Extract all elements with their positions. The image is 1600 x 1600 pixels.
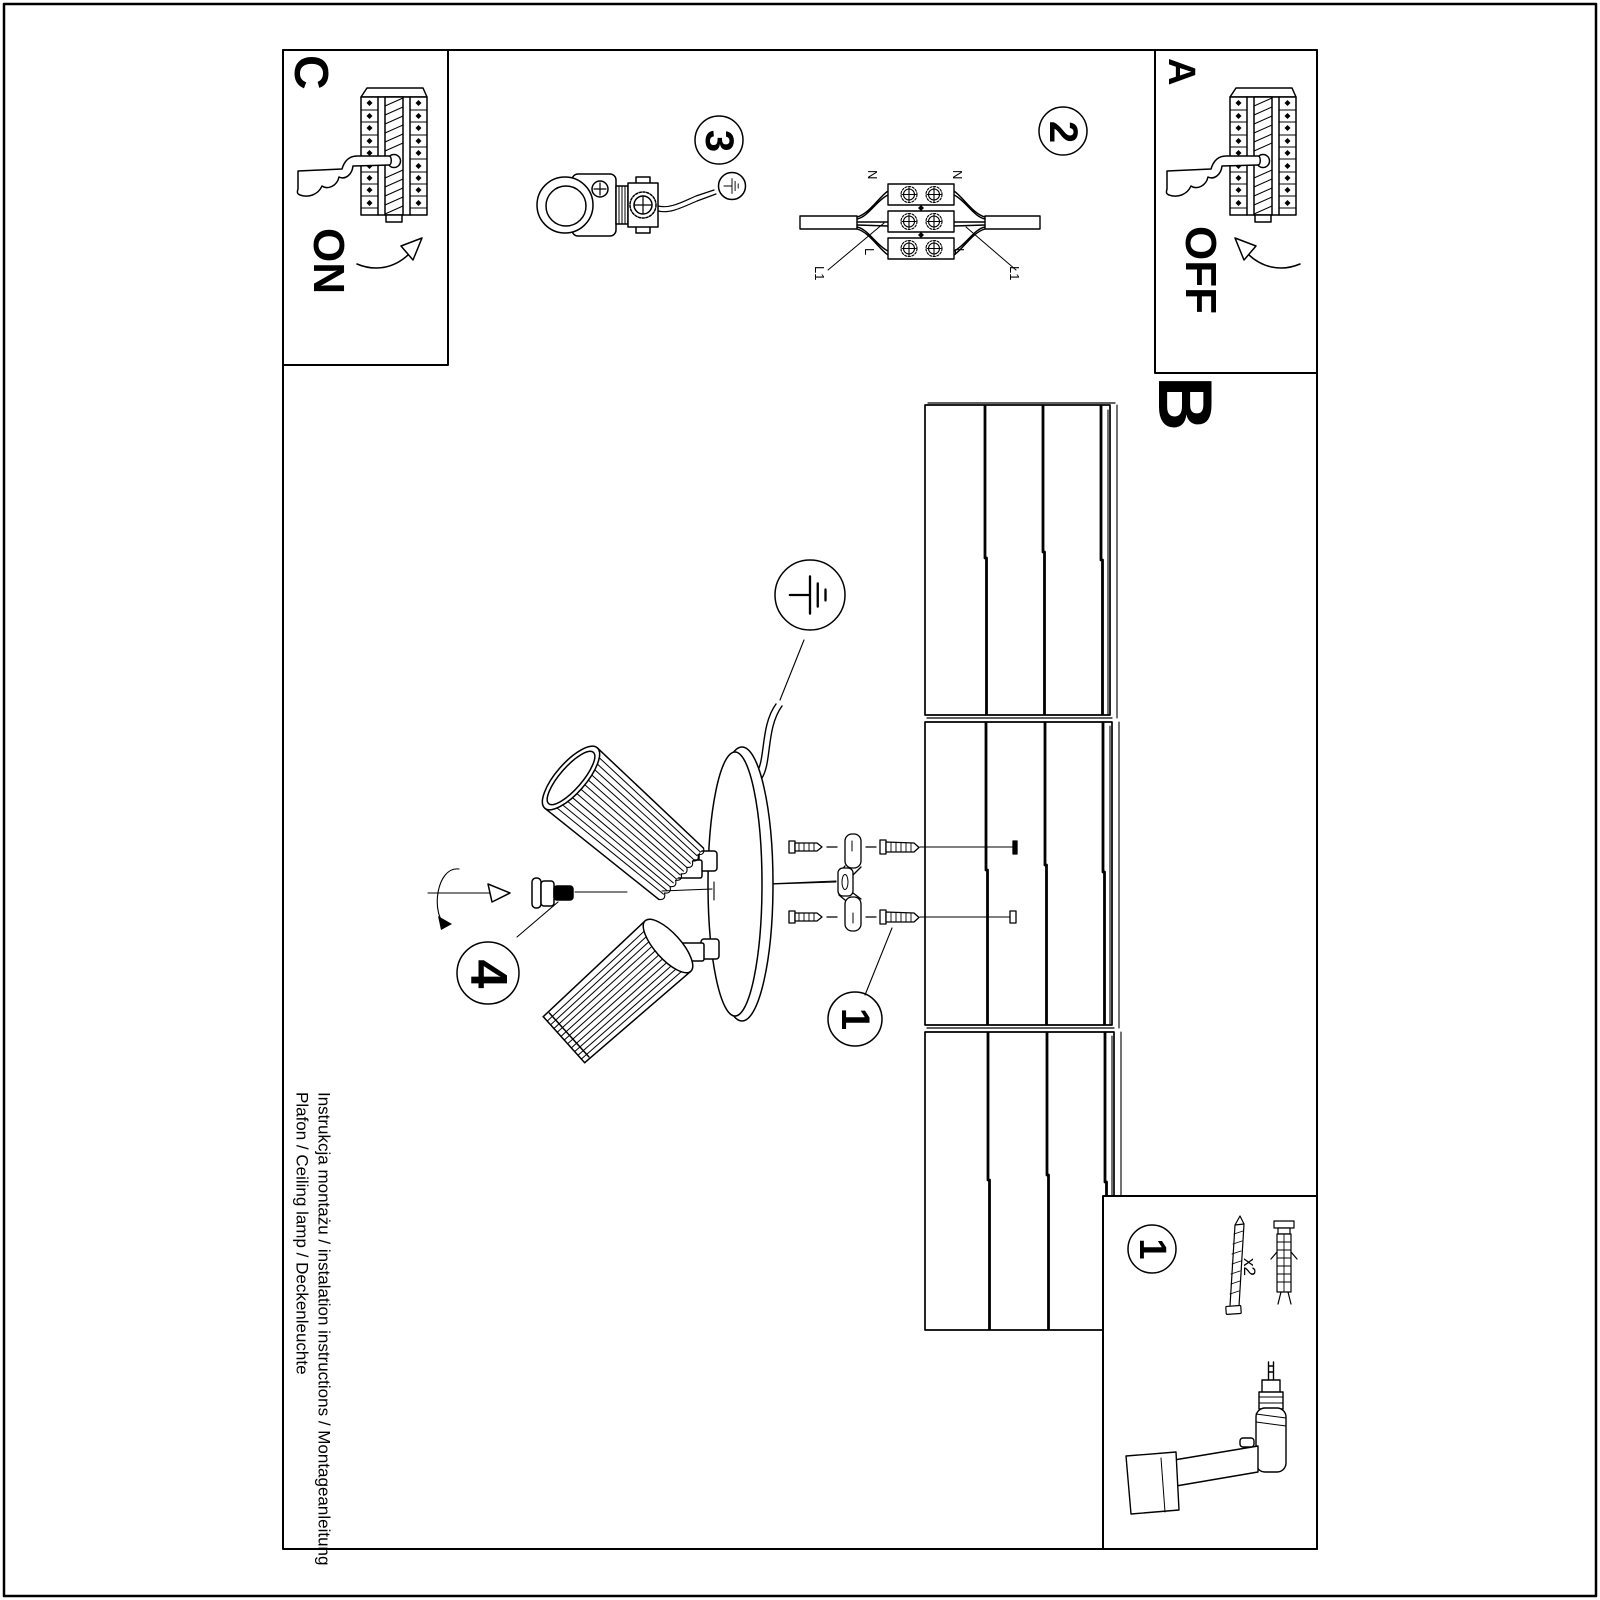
drill-hole-mark <box>1010 911 1016 923</box>
footer-instructions-line: Instrukcja montażu / instalation instruc… <box>313 1092 334 1565</box>
footer-product-line: Plafon / Ceiling lamp / Deckenleuchte <box>291 1092 312 1375</box>
canopy-icon <box>708 747 773 1021</box>
step-number-mounting: 1 <box>835 1008 875 1030</box>
curved-arrow-icon <box>1246 252 1300 268</box>
arrowhead-icon <box>1235 238 1256 260</box>
screw-icon <box>789 911 822 923</box>
ceiling-panels-icon <box>925 403 1121 1330</box>
lamp-shade-icon <box>533 738 709 906</box>
terminal-block-icon <box>800 184 1040 270</box>
step-number-wiring: 2 <box>1043 121 1083 143</box>
instruction-sheet-page: C ON A OFF B 3 2 4 1 1 N N L L L1 L1 x2 … <box>0 0 1600 1600</box>
step-number-parts: 1 <box>1133 1238 1171 1259</box>
ground-wire <box>658 190 716 212</box>
leader-line <box>780 640 804 700</box>
rotation-arrow-icon <box>428 869 510 930</box>
terminal-l1-right-label: L1 <box>1008 266 1021 280</box>
switch-on-label: ON <box>306 228 350 294</box>
page-borders <box>4 4 1596 1596</box>
terminal-l1-left-label: L1 <box>813 266 826 280</box>
parts-qty-label: x2 <box>1241 1258 1258 1276</box>
switch-off-label: OFF <box>1178 226 1222 314</box>
terminal-n-right-label: N <box>951 170 964 179</box>
wall-plug-icon <box>880 910 919 924</box>
terminal-n-left-label: N <box>866 170 879 179</box>
terminal-l-right-label: L <box>953 248 966 255</box>
lamp-shade-icon <box>541 912 700 1065</box>
curved-arrow-icon <box>357 252 411 268</box>
screw-icon <box>789 841 822 853</box>
mains-cable <box>756 704 782 778</box>
step-number-holder: 3 <box>699 130 739 152</box>
ground-symbol-icon <box>775 560 845 630</box>
step-number-adjustment: 4 <box>462 960 514 989</box>
section-c-label: C <box>286 55 334 90</box>
lamp-holder-icon <box>537 174 716 236</box>
terminal-l-left-label: L <box>863 248 876 255</box>
diagram-artwork <box>0 0 1600 1600</box>
leader-line <box>865 928 892 995</box>
drill-hole-mark <box>1013 841 1017 854</box>
section-b-label: B <box>1146 376 1222 431</box>
wall-plug-icon <box>880 840 919 854</box>
knob-screw-icon <box>532 878 573 908</box>
section-a-label: A <box>1162 58 1200 85</box>
arrowhead-icon <box>401 238 422 260</box>
